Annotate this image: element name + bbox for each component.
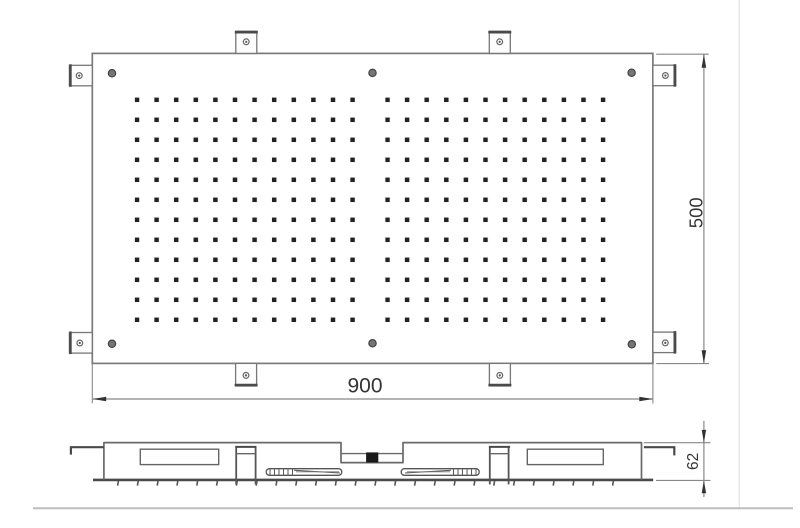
svg-text:62: 62	[685, 453, 702, 470]
svg-text:500: 500	[685, 197, 706, 228]
svg-text:900: 900	[347, 375, 382, 398]
